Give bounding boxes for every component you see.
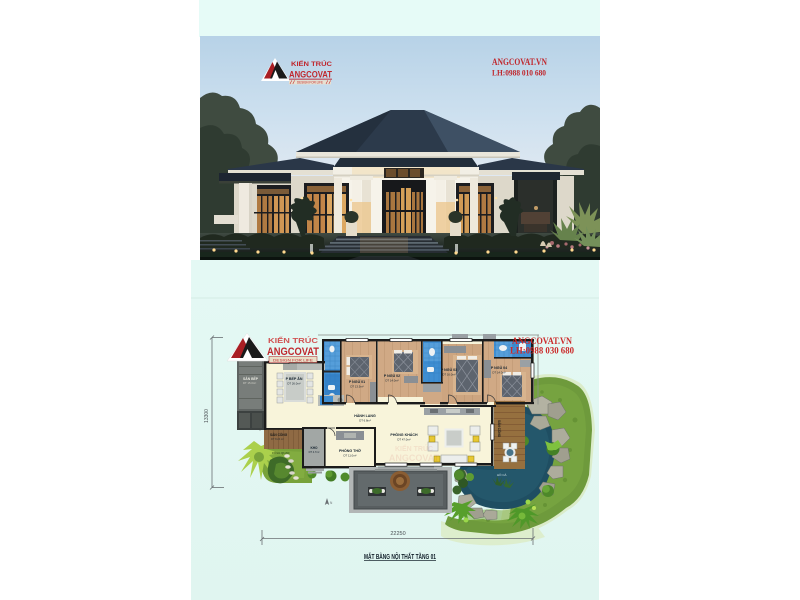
svg-text:LH:0988 010 680: LH:0988 010 680 xyxy=(492,68,546,78)
svg-text:DT 47.0m²: DT 47.0m² xyxy=(397,438,410,442)
svg-text:LH:0988 030 680: LH:0988 030 680 xyxy=(510,347,574,357)
svg-text:DT 4.7m²: DT 4.7m² xyxy=(309,450,320,454)
svg-text:DT 26.0m²: DT 26.0m² xyxy=(287,382,300,386)
svg-text:P BẾP ĂN: P BẾP ĂN xyxy=(286,376,303,381)
svg-text:DT 14.0m²: DT 14.0m² xyxy=(385,379,398,383)
svg-text:PHÒNG THỜ: PHÒNG THỜ xyxy=(339,448,362,453)
svg-text:ANGCOVAT.VN: ANGCOVAT.VN xyxy=(492,57,547,67)
svg-text:P NGỦ 04: P NGỦ 04 xyxy=(491,365,507,370)
svg-text:CÔNG QUAN: CÔNG QUAN xyxy=(272,450,289,455)
svg-text:DT 14.0m²: DT 14.0m² xyxy=(492,371,505,375)
svg-text:KHO: KHO xyxy=(310,446,318,450)
svg-text:13300: 13300 xyxy=(204,409,210,423)
svg-text:P NGỦ 01: P NGỦ 01 xyxy=(349,379,365,384)
svg-text:ANGCOVAT.VN: ANGCOVAT.VN xyxy=(512,336,572,346)
svg-text:DT 16.0m²: DT 16.0m² xyxy=(442,373,455,377)
svg-text:22250: 22250 xyxy=(390,531,405,537)
svg-text:DT 8.24 m²: DT 8.24 m² xyxy=(271,437,284,441)
svg-text:P NGỦ 02: P NGỦ 02 xyxy=(384,373,400,378)
svg-text:SÂN CÔNG: SÂN CÔNG xyxy=(270,432,288,437)
svg-text:PHÒNG KHÁCH: PHÒNG KHÁCH xyxy=(390,432,418,437)
svg-text:DESIGN FOR LIFE: DESIGN FOR LIFE xyxy=(297,81,323,85)
svg-text:HỒ CÁ: HỒ CÁ xyxy=(497,472,507,477)
svg-text:DT 6.8m²: DT 6.8m² xyxy=(359,419,371,423)
svg-text:DT 15.0m²: DT 15.0m² xyxy=(243,381,256,385)
svg-text:DESIGN FOR LIFE: DESIGN FOR LIFE xyxy=(273,359,314,363)
svg-text:P NGỦ 03: P NGỦ 03 xyxy=(441,367,457,372)
svg-text:DT 11.0m²: DT 11.0m² xyxy=(344,454,357,458)
svg-text:SÂN CÔNG: SÂN CÔNG xyxy=(497,420,502,438)
svg-text:HÀNH LANG: HÀNH LANG xyxy=(354,413,376,418)
svg-text:ANGCOVAT: ANGCOVAT xyxy=(267,346,319,358)
svg-text:DT 13.5m²: DT 13.5m² xyxy=(350,385,363,389)
svg-text:ANGCOVAT: ANGCOVAT xyxy=(389,453,440,463)
